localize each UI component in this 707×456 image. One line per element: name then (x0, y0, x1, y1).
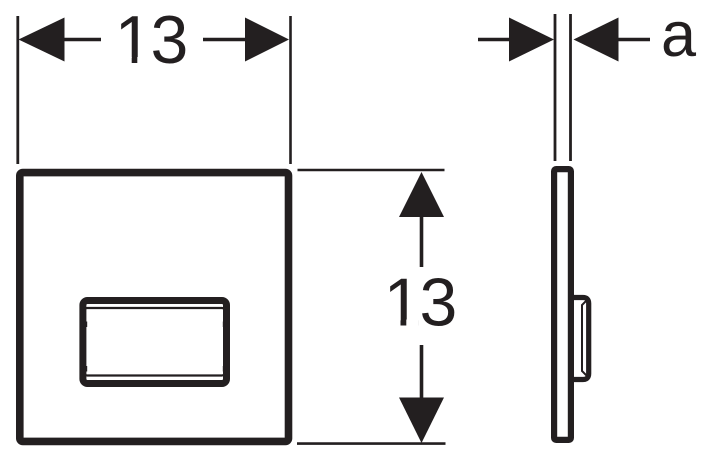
svg-text:13: 13 (115, 2, 187, 78)
svg-text:a: a (661, 0, 697, 70)
svg-text:13: 13 (384, 265, 456, 341)
